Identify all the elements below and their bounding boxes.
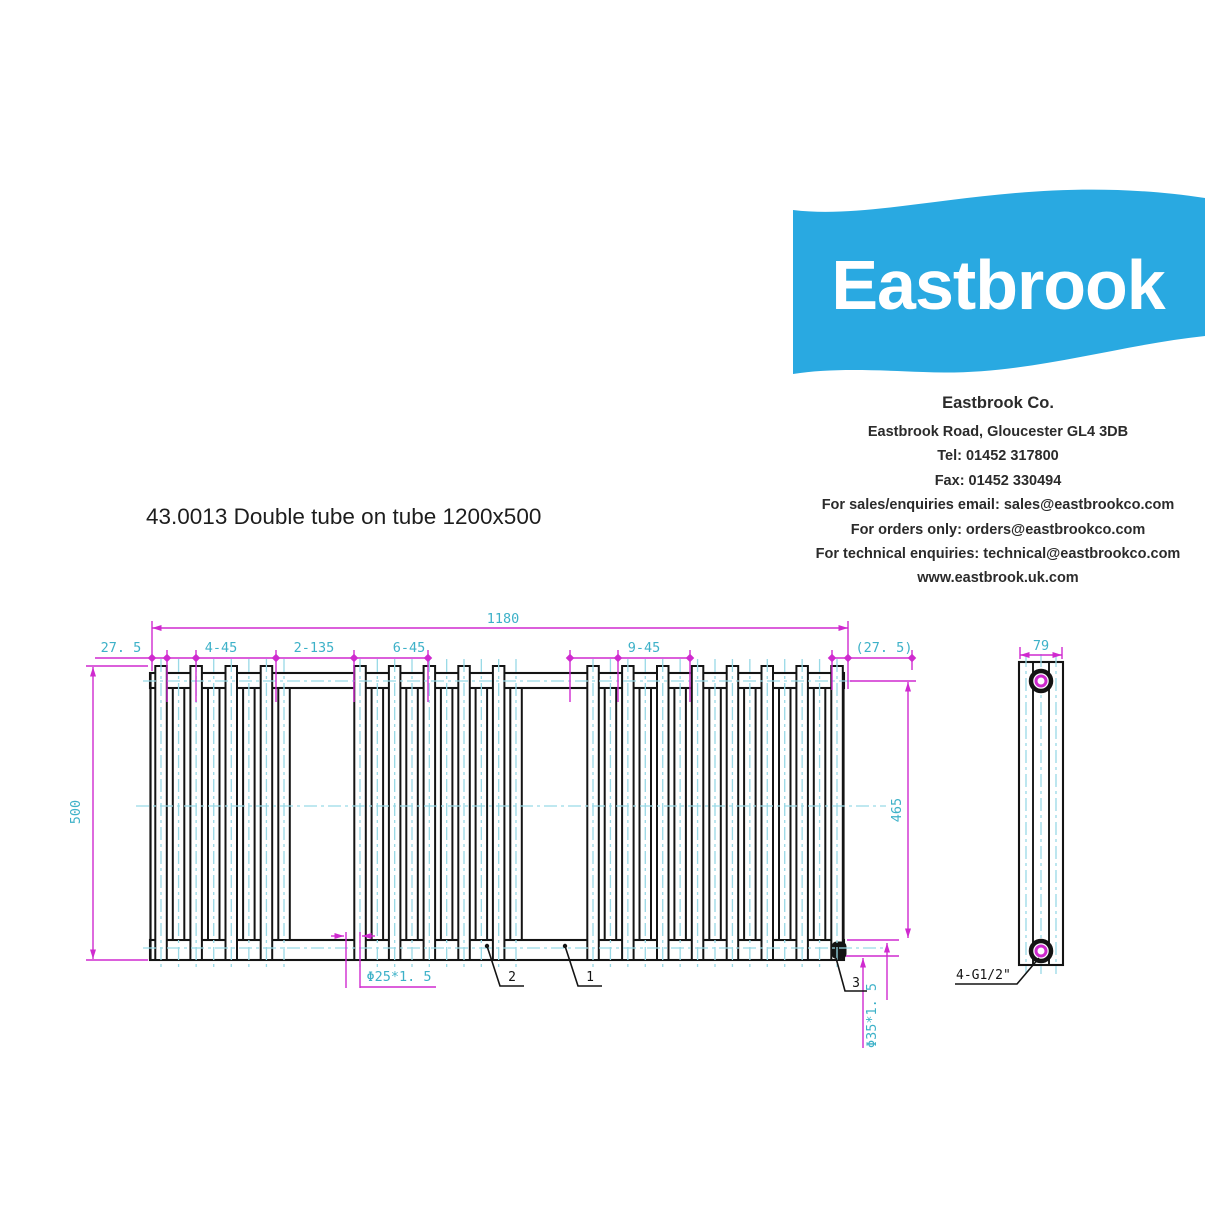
dim-spacing-2: 2-135 [294, 640, 335, 656]
dim-left-offset: 27. 5 [101, 640, 142, 656]
side-view [1019, 654, 1063, 974]
dim-overall-height: 500 [68, 800, 84, 824]
top-port [1031, 671, 1051, 691]
bottom-port [1031, 941, 1051, 961]
dim-spacing-3: 6-45 [393, 640, 426, 656]
part-label-3: 3 [852, 976, 860, 991]
part-label-1: 1 [586, 970, 594, 985]
dim-tube-size: Φ25*1. 5 [366, 969, 431, 985]
front-view [136, 659, 886, 968]
dimension-tick [148, 654, 156, 662]
technical-drawing: 1180 27. 5 4-45 2-135 6-45 9-45 (27. 5) … [0, 0, 1214, 1214]
dimension-tick [844, 654, 852, 662]
dim-spacing-1: 4-45 [205, 640, 238, 656]
part-label-2: 2 [508, 970, 516, 985]
connection-stub [832, 942, 847, 960]
dim-depth: 79 [1033, 638, 1049, 654]
dim-overall-width: 1180 [487, 611, 520, 627]
dim-spacing-4: 9-45 [628, 640, 661, 656]
spec-sheet-page: Eastbrook Eastbrook Co. Eastbrook Road, … [0, 0, 1214, 1214]
label-connection: 4-G1/2" [956, 968, 1011, 983]
dim-collector-height: 465 [889, 798, 905, 822]
dim-right-offset: (27. 5) [856, 640, 913, 656]
dim-manifold-size: Φ35*1. 5 [864, 983, 880, 1048]
